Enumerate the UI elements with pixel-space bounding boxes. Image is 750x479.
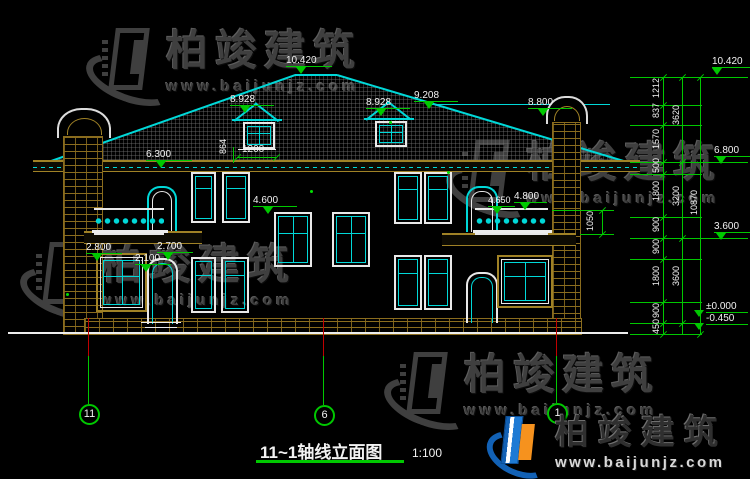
dimension-extension-line xyxy=(630,174,702,175)
axis-line-green xyxy=(556,356,557,403)
elevation-marker: 3.600 xyxy=(714,221,750,245)
dimension-label: 900 xyxy=(651,303,661,318)
window-1f xyxy=(497,255,553,308)
dimension-label: 1800 xyxy=(651,266,661,286)
brand-logo-text: 柏竣建筑 xyxy=(555,414,727,452)
dimension-label: 900 xyxy=(651,239,661,254)
elevation-marker: 2.100 xyxy=(135,253,171,277)
cad-dot xyxy=(389,121,392,124)
cad-dot xyxy=(66,293,69,296)
elevation-marker: 4.650 xyxy=(488,195,515,219)
axis-line-red xyxy=(323,318,324,356)
brand-logo-icon xyxy=(487,414,547,476)
door-step xyxy=(145,327,177,328)
dimension-label: 1050 xyxy=(585,211,595,231)
cad-dot xyxy=(310,190,313,193)
dimension-label: 1800 xyxy=(651,181,661,201)
window-2f xyxy=(191,172,216,223)
stair-window xyxy=(332,212,370,267)
elevation-marker: ±0.000 xyxy=(706,301,748,313)
dimension-extension-line xyxy=(552,210,614,211)
eave-band xyxy=(33,160,640,172)
dimension-label: 3620 xyxy=(671,105,681,125)
window-1f xyxy=(394,255,422,310)
dimension-extension-line xyxy=(630,323,702,324)
elevation-marker: -0.450 xyxy=(706,313,748,325)
dimension-label: 3600 xyxy=(671,266,681,286)
dimension-label: 500 xyxy=(651,158,661,173)
axis-line-green xyxy=(88,356,89,404)
axis-line-red xyxy=(556,318,557,356)
axis-line-green xyxy=(323,356,324,405)
dormer-eave-line xyxy=(232,119,282,121)
axis-bubble: 11 xyxy=(79,404,100,425)
chimney-shaft xyxy=(552,122,581,322)
watermark-building-icon xyxy=(390,352,454,424)
eave-dashed-line xyxy=(33,167,640,168)
dimension-line xyxy=(602,210,603,235)
watermark-brand: 柏竣建筑 xyxy=(166,28,362,74)
balcony-slab xyxy=(92,230,168,233)
axis-bubble: 6 xyxy=(314,405,335,426)
elevation-marker: 10.420 xyxy=(286,55,332,79)
elevation-marker: 6.800 xyxy=(714,145,750,169)
dimension-label: 837 xyxy=(651,103,661,118)
dimension-extension-line xyxy=(580,234,614,235)
brand-logo-url: www.baijunjz.com xyxy=(555,454,727,471)
cad-elevation-drawing: 柏竣建筑 www.baijunjz.com 柏竣建筑 www.baijunjz.… xyxy=(0,0,750,479)
chimney-cap xyxy=(57,108,111,138)
door-step xyxy=(141,322,181,323)
dimension-label: 1212 xyxy=(651,78,661,98)
entry-door xyxy=(466,272,498,323)
elevation-marker: 8.928 xyxy=(230,94,274,118)
window-1f xyxy=(191,257,216,313)
elevation-marker: 6.300 xyxy=(146,149,192,173)
dimension-extension-line xyxy=(630,125,702,126)
dimension-extension-line xyxy=(630,217,702,218)
dimension-extension-line xyxy=(630,259,702,260)
window-2f xyxy=(222,172,250,223)
elevation-marker: 9.208 xyxy=(414,90,458,114)
watermark-brand: 柏竣建筑 xyxy=(464,352,660,398)
cad-dot xyxy=(447,171,450,174)
drawing-scale: 1:100 xyxy=(412,446,442,460)
balcony-slab xyxy=(473,230,552,233)
window-1f xyxy=(221,257,249,313)
watermark-building-icon xyxy=(92,28,156,100)
window-1f xyxy=(424,255,452,310)
elevation-marker: 10.420 xyxy=(712,56,750,80)
dimension-label: 900 xyxy=(651,217,661,232)
elevation-marker: 4.600 xyxy=(253,195,297,219)
elevation-marker: 4.800 xyxy=(514,191,547,215)
window-2f xyxy=(394,172,422,224)
dimension-label: 1200 xyxy=(242,144,264,155)
stair-window xyxy=(274,212,312,267)
axis-line-red xyxy=(88,318,89,356)
elevation-marker: 8.928 xyxy=(366,97,410,121)
title-underline xyxy=(256,460,404,463)
dimension-chain-line xyxy=(682,77,683,334)
brand-logo: 柏竣建筑 www.baijunjz.com xyxy=(487,414,727,476)
window-2f xyxy=(424,172,452,224)
dimension-extension-line xyxy=(630,105,702,106)
dimension-label: 864 xyxy=(218,139,228,154)
dimension-chain-line xyxy=(663,77,664,334)
dimension-label: 1570 xyxy=(651,129,661,149)
dimension-extension-line xyxy=(630,334,702,335)
ground-line xyxy=(8,332,628,334)
dimension-label: 3200 xyxy=(671,186,681,206)
dimension-chain-line xyxy=(700,77,701,334)
dimension-extension-line xyxy=(630,302,702,303)
dormer-window xyxy=(375,121,407,147)
elevation-marker: 8.800 xyxy=(528,97,572,121)
elevation-marker: 2.800 xyxy=(86,242,122,266)
dimension-line xyxy=(233,147,234,163)
dimension-label: 450 xyxy=(651,319,661,334)
dimension-line xyxy=(237,157,276,158)
dimension-label: 10870 xyxy=(689,190,699,215)
